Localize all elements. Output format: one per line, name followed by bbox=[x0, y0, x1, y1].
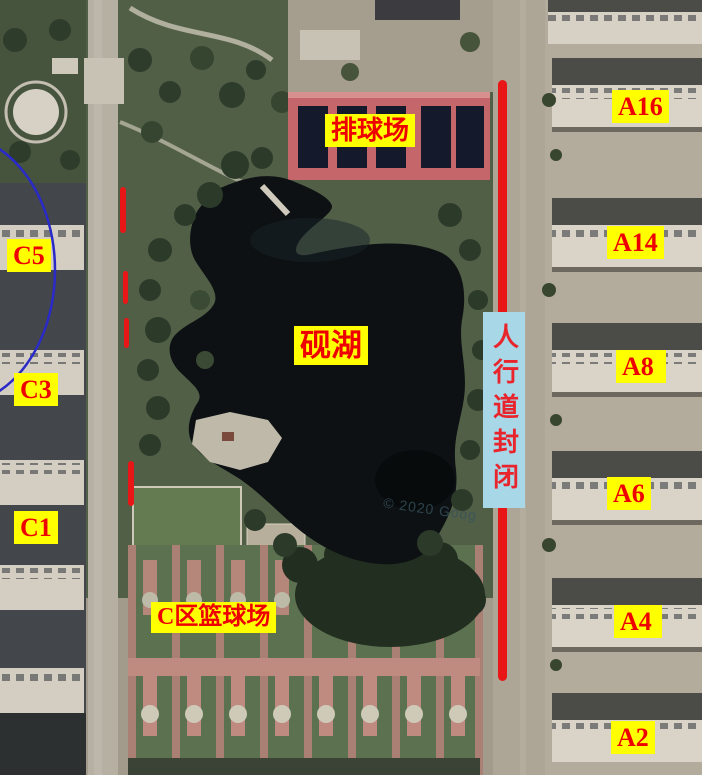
building-label-a4: A4 bbox=[614, 605, 662, 638]
building-label-a2: A2 bbox=[611, 721, 655, 754]
closed-path-dash bbox=[123, 271, 128, 304]
building-label-c3: C3 bbox=[14, 373, 58, 406]
lake-label: 砚湖 bbox=[294, 326, 368, 365]
sidewalk-closed-banner: 人行道封闭 bbox=[483, 312, 525, 508]
closed-path-dash bbox=[124, 318, 129, 348]
building-label-a16: A16 bbox=[612, 90, 669, 123]
building-label-a6: A6 bbox=[607, 477, 651, 510]
building-label-a8: A8 bbox=[616, 350, 666, 383]
volleyball-court-label: 排球场 bbox=[325, 114, 415, 147]
road-left bbox=[84, 0, 124, 775]
basketball-court-label: C区篮球场 bbox=[151, 602, 276, 633]
closed-path-dash bbox=[128, 461, 134, 506]
closed-path-dash bbox=[120, 187, 126, 233]
building-label-c1: C1 bbox=[14, 511, 58, 544]
building-label-c5: C5 bbox=[7, 239, 51, 272]
basketball-courts-area bbox=[128, 539, 486, 775]
north-blocks bbox=[288, 0, 497, 92]
building-label-a14: A14 bbox=[607, 226, 664, 259]
annotated-satellite-map: 人行道封闭 © 2020 Goog 排球场 砚湖 C区篮球场 C5 C3 C1 … bbox=[0, 0, 702, 775]
